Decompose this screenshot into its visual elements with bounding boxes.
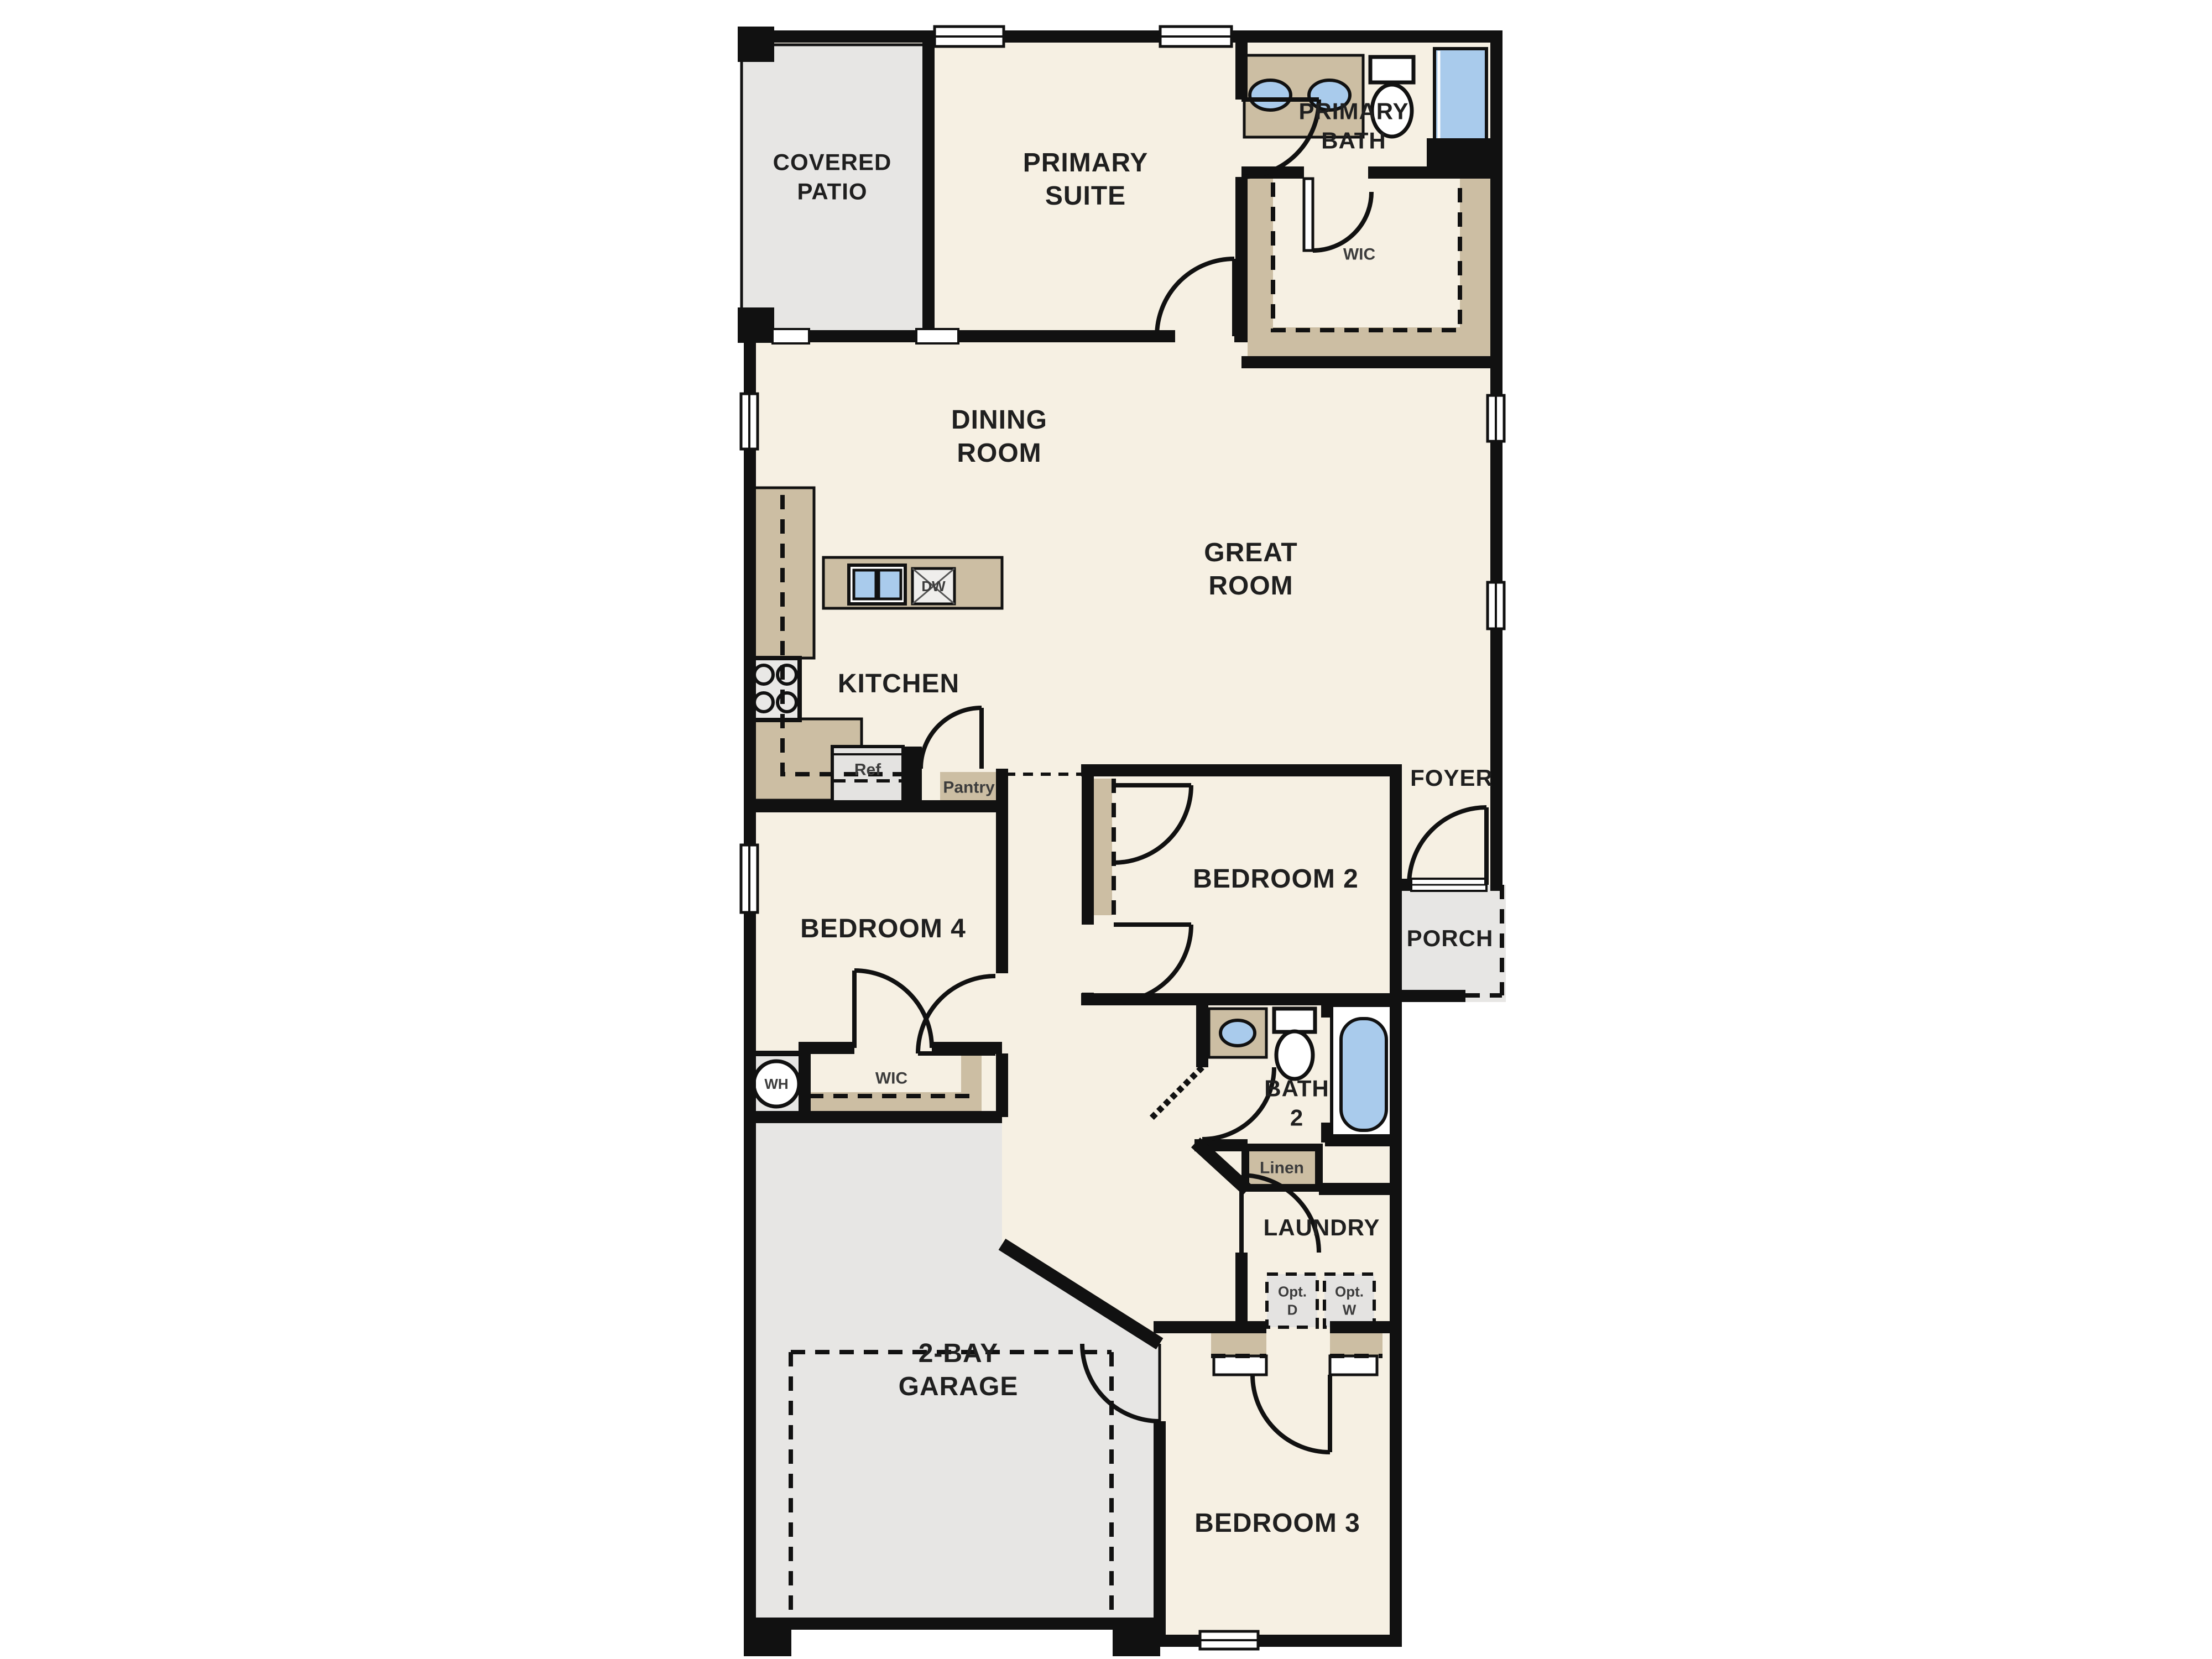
window-icon — [741, 845, 758, 912]
floor-plan: COVERED PATIO PRIMARY SUITE PRIMARY BATH… — [0, 0, 2212, 1659]
room-label-wic-primary: WIC — [1343, 244, 1375, 265]
front-door-sill — [1411, 879, 1486, 891]
window-icon — [1160, 27, 1232, 46]
window-icon — [1488, 395, 1504, 441]
room-label-great-room: GREAT ROOM — [1204, 536, 1297, 603]
label-water-heater: WH — [764, 1075, 788, 1093]
room-label-bedroom2: BEDROOM 2 — [1193, 863, 1359, 896]
window-icon — [1488, 582, 1504, 629]
room-label-dining-room: DINING ROOM — [951, 404, 1047, 470]
sink-icon — [1250, 80, 1291, 110]
floor-plan-drawing — [0, 0, 2212, 1659]
room-label-primary-suite: PRIMARY SUITE — [1023, 147, 1149, 213]
room-label-garage: 2-BAY GARAGE — [899, 1337, 1019, 1404]
room-label-bedroom4: BEDROOM 4 — [800, 912, 966, 946]
bedroom2-closet-shelf — [1092, 779, 1112, 915]
label-refrigerator: Ref — [854, 759, 881, 780]
bathtub-icon — [1332, 1005, 1394, 1140]
toilet-icon — [1274, 1009, 1315, 1079]
window-icon — [741, 394, 758, 449]
window-icon — [935, 27, 1004, 46]
label-dishwasher: DW — [921, 577, 945, 596]
room-label-kitchen: KITCHEN — [838, 667, 959, 701]
sink-icon — [1220, 1020, 1255, 1046]
label-opt-washer: Opt. W — [1335, 1283, 1364, 1319]
room-label-foyer: FOYER — [1410, 764, 1493, 793]
shower-icon — [1434, 49, 1486, 142]
patio-opening — [916, 329, 958, 343]
room-label-covered-patio: COVERED PATIO — [773, 148, 892, 206]
label-opt-dryer: Opt. D — [1278, 1283, 1307, 1319]
room-label-bedroom3: BEDROOM 3 — [1194, 1507, 1360, 1540]
room-label-porch: PORCH — [1407, 924, 1494, 953]
patio-opening — [773, 329, 809, 343]
label-linen: Linen — [1260, 1157, 1304, 1178]
room-label-bath2: BATH 2 — [1264, 1074, 1329, 1133]
room-label-primary-bath: PRIMARY BATH — [1298, 97, 1408, 155]
room-label-wic-bedroom4: WIC — [875, 1068, 907, 1089]
kitchen-sink-icon — [849, 565, 905, 604]
stove-icon — [750, 658, 800, 720]
room-label-laundry: LAUNDRY — [1264, 1213, 1380, 1243]
window-icon — [1200, 1631, 1258, 1649]
label-pantry: Pantry — [943, 777, 994, 798]
